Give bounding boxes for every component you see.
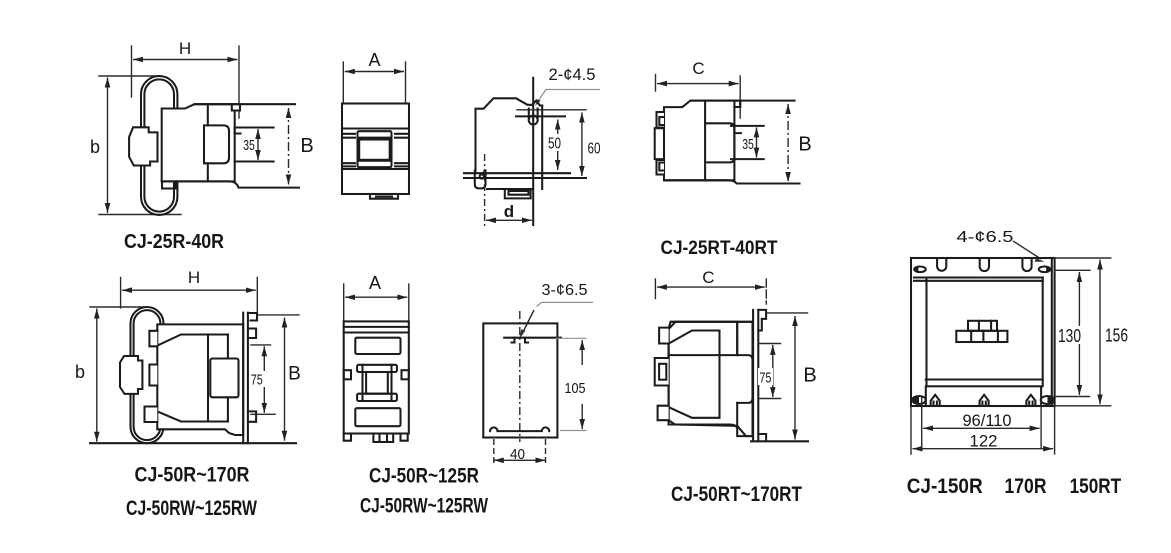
svg-text:60: 60 [588,141,601,158]
svg-text:C: C [702,268,714,287]
svg-text:CJ-25RT-40RT: CJ-25RT-40RT [661,238,778,259]
svg-text:105: 105 [565,380,586,397]
svg-text:A: A [369,273,381,293]
svg-text:B: B [798,134,811,156]
svg-text:CJ-50RT~170RT: CJ-50RT~170RT [671,483,802,506]
svg-text:B: B [300,135,313,157]
svg-text:50: 50 [548,136,561,153]
svg-text:75: 75 [759,370,771,387]
svg-text:3-¢6.5: 3-¢6.5 [542,282,588,299]
svg-text:35: 35 [742,136,754,153]
svg-text:H: H [188,268,200,287]
svg-text:35: 35 [243,137,255,154]
svg-text:130: 130 [1058,326,1081,346]
svg-text:A: A [368,50,380,70]
svg-text:CJ-50R~125R: CJ-50R~125R [369,465,479,488]
svg-text:C: C [692,59,704,78]
svg-text:150RT: 150RT [1070,475,1122,498]
svg-text:CJ-50RW~125RW: CJ-50RW~125RW [360,495,488,518]
svg-text:B: B [288,364,301,385]
svg-text:CJ-25R-40R: CJ-25R-40R [124,231,224,253]
svg-text:b: b [90,137,100,157]
svg-text:b: b [75,362,85,382]
svg-text:H: H [179,39,191,58]
svg-text:CJ-150R: CJ-150R [907,475,983,498]
svg-text:2-¢4.5: 2-¢4.5 [549,65,596,84]
svg-text:122: 122 [970,432,998,451]
svg-text:170R: 170R [1005,475,1047,498]
svg-text:CJ-50RW~125RW: CJ-50RW~125RW [126,497,257,520]
svg-text:CJ-50R~170R: CJ-50R~170R [135,464,250,487]
svg-text:4-¢6.5: 4-¢6.5 [957,229,1014,246]
svg-text:75: 75 [251,372,263,389]
svg-text:96/110: 96/110 [963,411,1012,430]
svg-text:d: d [504,202,514,221]
svg-text:B: B [803,365,816,387]
svg-text:40: 40 [510,446,525,463]
svg-text:156: 156 [1105,326,1128,346]
